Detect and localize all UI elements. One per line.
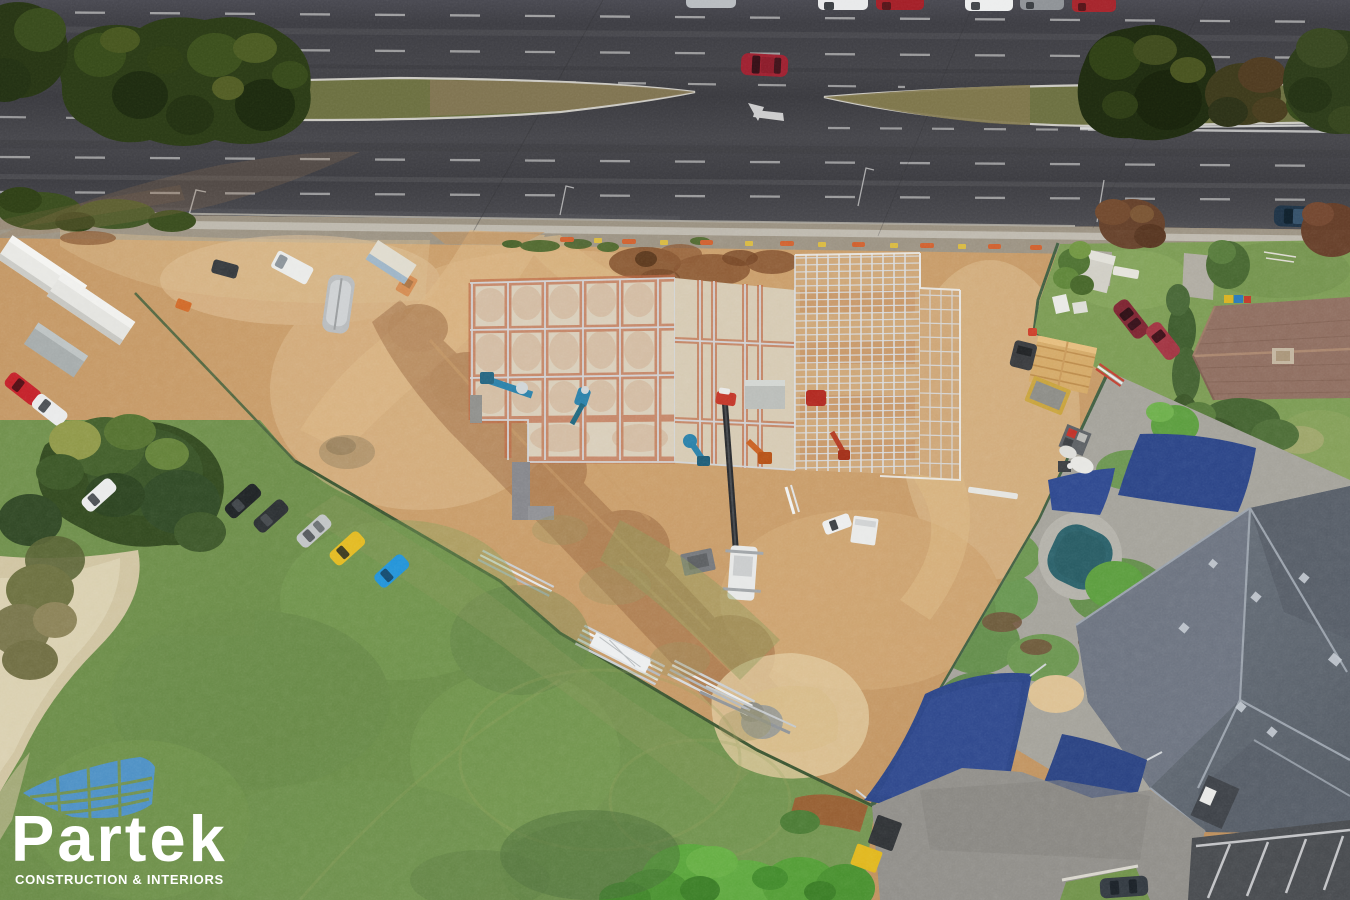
svg-text:Partek: Partek (11, 802, 228, 875)
svg-text:CONSTRUCTION & INTERIORS: CONSTRUCTION & INTERIORS (15, 872, 224, 887)
